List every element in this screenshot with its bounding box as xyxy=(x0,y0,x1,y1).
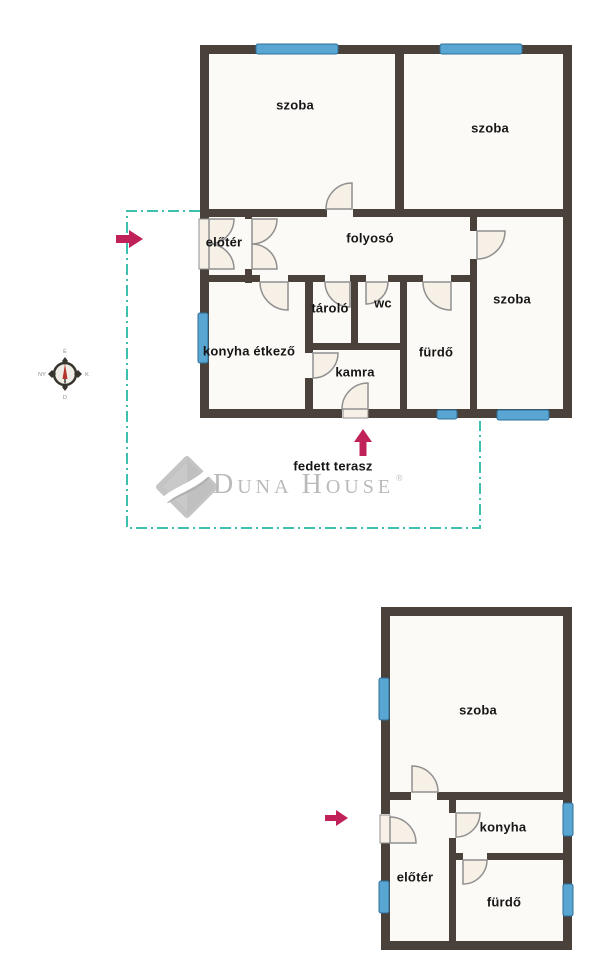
door-leaf xyxy=(380,815,390,843)
duna-house-logo-icon xyxy=(159,459,215,515)
room-label-furdo-2: fürdő xyxy=(487,895,521,910)
logo-letter-d: D xyxy=(213,469,237,500)
window-icon xyxy=(379,881,389,913)
secondary-floor-plan xyxy=(379,607,573,950)
wall-segment xyxy=(288,275,325,282)
main-entrance-arrow-icon xyxy=(116,230,143,248)
wall-segment xyxy=(351,282,358,346)
compass-east-label: K xyxy=(85,372,89,378)
window-icon xyxy=(563,884,573,916)
wall-segment xyxy=(200,409,342,418)
wall-segment xyxy=(487,853,564,860)
wall-segment xyxy=(208,275,260,282)
wall-segment xyxy=(245,216,252,219)
room-label-kamra: kamra xyxy=(335,365,374,380)
room-label-konyha: konyha xyxy=(480,820,527,835)
wall-segment xyxy=(305,282,313,353)
room-label-konyha-etkezo: konyha étkező xyxy=(203,344,295,359)
window-icon xyxy=(440,44,522,54)
window-icon xyxy=(563,803,573,836)
duna-house-wordmark: DUNAHOUSE® xyxy=(213,470,401,501)
window-icon xyxy=(256,44,338,54)
logo-letters-una: UNA xyxy=(237,476,292,498)
wall-segment xyxy=(200,45,209,219)
room-label-wc: wc xyxy=(374,296,392,311)
wall-segment xyxy=(437,792,564,800)
room-label-furdo-1: fürdő xyxy=(419,345,453,360)
room-label-szoba-3: szoba xyxy=(493,292,531,307)
window-icon xyxy=(497,410,549,420)
wall-segment xyxy=(389,792,411,800)
wall-segment xyxy=(381,607,572,616)
compass-icon: É K D NY xyxy=(38,348,89,401)
wall-segment xyxy=(451,275,470,282)
room-label-szoba-1: szoba xyxy=(276,98,314,113)
wall-segment xyxy=(563,45,572,418)
compass-west-label: NY xyxy=(38,372,46,378)
wall-segment xyxy=(470,216,477,231)
secondary-entrance-arrow-icon xyxy=(325,810,348,826)
wall-segment xyxy=(305,378,313,410)
wall-segment xyxy=(353,209,572,217)
floor-plan-page: É K D NY szoba szoba előtér folyosó szob… xyxy=(0,0,600,978)
logo-letters-ouse: OUSE xyxy=(326,476,394,498)
wall-segment xyxy=(350,275,366,282)
registered-mark: ® xyxy=(396,473,403,483)
wall-segment xyxy=(395,53,404,216)
wall-segment xyxy=(400,282,407,410)
terrace-arrow-icon xyxy=(354,429,372,456)
compass-south-label: D xyxy=(63,395,67,401)
room-label-szoba-2: szoba xyxy=(471,121,509,136)
room-label-tarolo: tároló xyxy=(311,301,348,316)
room-label-folyoso: folyosó xyxy=(346,231,394,246)
compass-north-label: É xyxy=(63,348,67,355)
wall-segment xyxy=(381,941,572,950)
wall-segment xyxy=(449,800,456,813)
wall-segment xyxy=(313,343,400,350)
window-icon xyxy=(437,410,457,419)
logo-letter-h: H xyxy=(302,469,326,500)
window-icon xyxy=(379,678,389,720)
wall-segment xyxy=(388,275,423,282)
wall-segment xyxy=(449,838,456,941)
wall-segment xyxy=(456,853,463,860)
wall-segment xyxy=(470,259,477,410)
room-label-szoba-4: szoba xyxy=(459,703,497,718)
door-leaf xyxy=(343,409,368,418)
room-label-elotér: előtér xyxy=(206,235,243,250)
wall-segment xyxy=(200,209,327,217)
room-label-elotér-2: előtér xyxy=(397,870,434,885)
